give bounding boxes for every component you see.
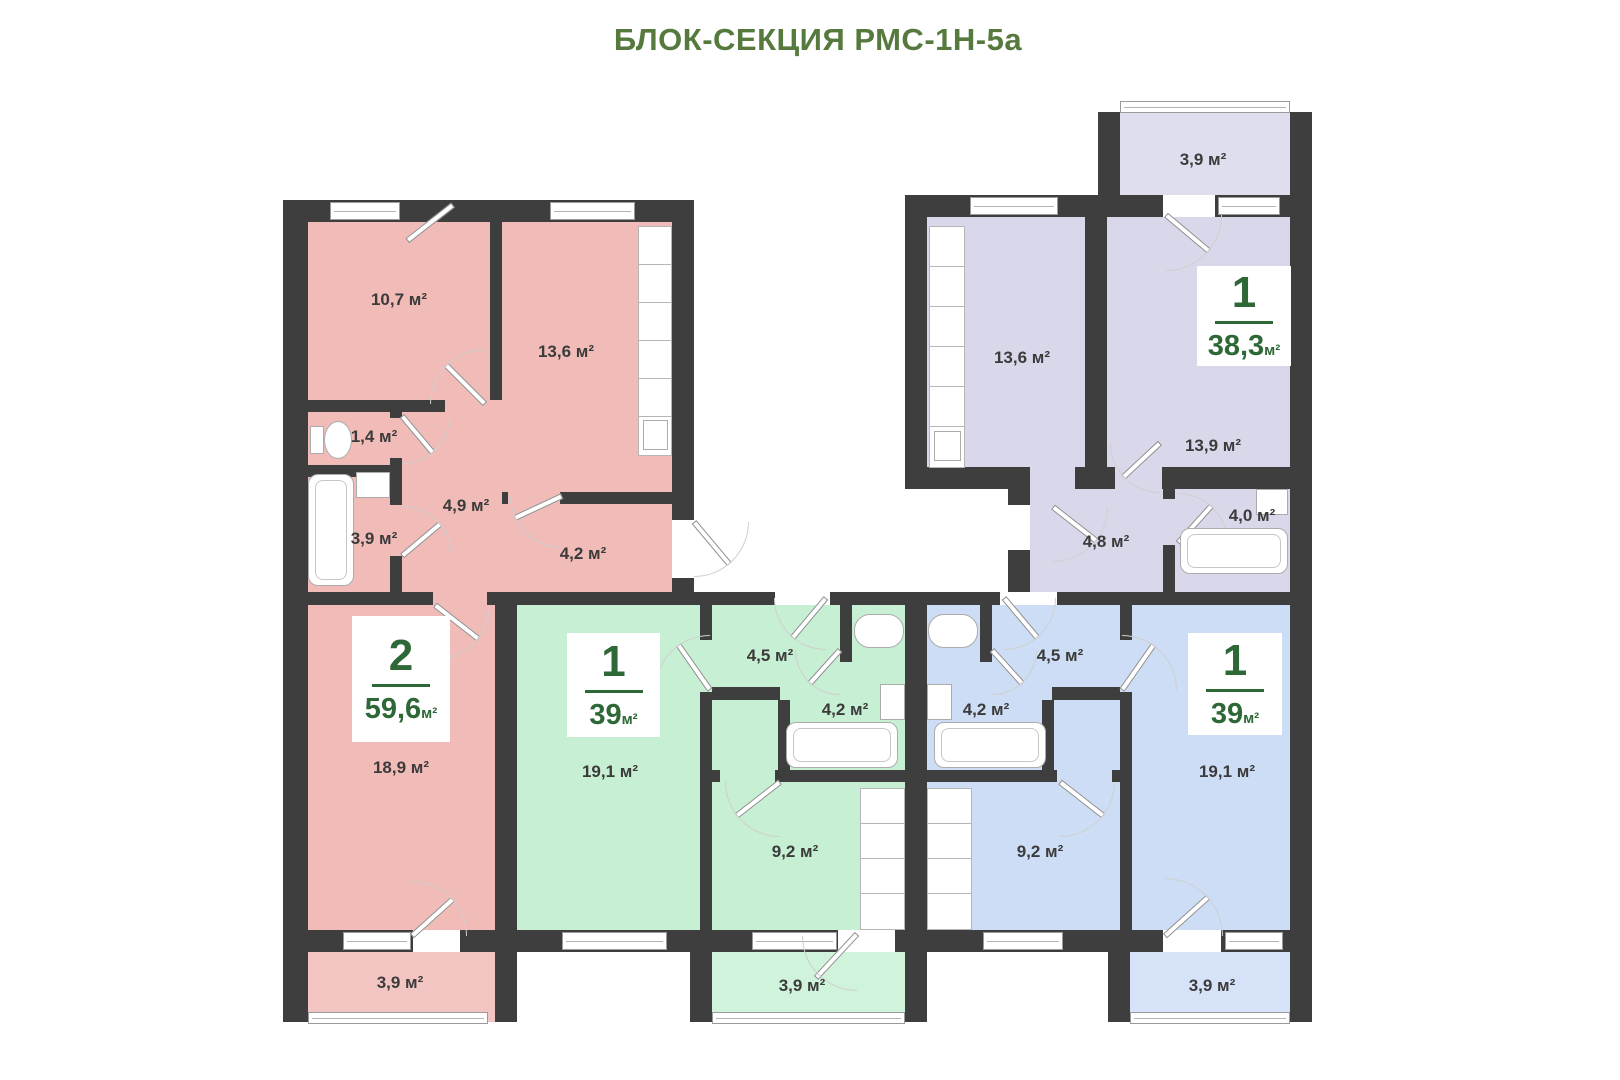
wall <box>712 770 720 782</box>
apartment-rooms-count: 1 <box>1223 639 1247 683</box>
door-opening <box>1163 195 1215 217</box>
door-opening <box>672 520 694 578</box>
wall <box>1120 605 1132 640</box>
balcony-rail <box>1120 101 1290 113</box>
wall <box>1290 112 1312 1022</box>
wall <box>927 770 1057 782</box>
room-label-pink-room1: 10,7 м² <box>371 290 427 310</box>
apartment-total-area-value: 39 <box>1211 698 1243 730</box>
vanity-unit <box>854 614 904 648</box>
wall <box>560 492 672 504</box>
balcony-rail <box>1130 1012 1290 1024</box>
room-label-blue-balcony: 3,9 м² <box>1189 976 1236 996</box>
badge-divider <box>1206 689 1264 692</box>
floor-plan: 10,7 м²13,6 м²1,4 м²3,9 м²4,9 м²4,2 м²18… <box>0 0 1620 1080</box>
stove <box>934 431 961 461</box>
wall <box>502 492 508 504</box>
area-unit: м² <box>421 705 437 722</box>
wall <box>1008 550 1030 592</box>
kitchen-counter <box>860 788 905 825</box>
apartment-rooms-count: 2 <box>389 634 413 678</box>
sink <box>356 472 390 498</box>
wall <box>905 952 927 1022</box>
wall <box>308 400 445 412</box>
wall <box>1052 687 1120 700</box>
kitchen-counter <box>927 858 972 895</box>
room-label-green-bath: 4,2 м² <box>822 700 869 720</box>
window <box>970 197 1058 215</box>
toilet-bowl <box>324 421 352 459</box>
apartment-total-area: 59,6м² <box>365 695 438 724</box>
wall <box>905 195 927 489</box>
wall <box>1112 770 1120 782</box>
room-label-pink-hall: 4,9 м² <box>443 496 490 516</box>
kitchen-counter <box>929 386 965 428</box>
window <box>562 932 667 950</box>
wall <box>690 952 712 1022</box>
wall <box>1008 489 1030 505</box>
toilet-tank <box>310 426 324 454</box>
room-label-pink-living: 18,9 м² <box>373 758 429 778</box>
kitchen-counter <box>860 893 905 930</box>
sink <box>927 684 952 720</box>
window <box>330 202 400 220</box>
bathtub <box>1180 528 1288 574</box>
apartment-total-area: 39м² <box>589 701 637 730</box>
balcony-rail <box>308 1012 488 1024</box>
bathtub <box>934 722 1046 768</box>
wall <box>490 222 502 400</box>
apartment-total-area: 39м² <box>1211 700 1259 729</box>
room-label-pink-bath: 3,9 м² <box>351 529 398 549</box>
wall <box>390 556 402 592</box>
room-label-lavender-bath: 4,0 м² <box>1229 506 1276 526</box>
badge-divider <box>1215 321 1273 324</box>
kitchen-counter <box>638 302 672 342</box>
apartment-badge-blue: 139м² <box>1188 633 1282 735</box>
room-label-pink-kitchen: 13,6 м² <box>538 342 594 362</box>
wall <box>672 200 694 520</box>
badge-divider <box>372 684 430 687</box>
wall <box>712 687 780 700</box>
wall <box>390 458 402 505</box>
area-unit: м² <box>1243 710 1259 727</box>
badge-divider <box>585 690 643 693</box>
apartment-total-area: 38,3м² <box>1208 332 1281 361</box>
wall <box>1108 952 1130 1022</box>
kitchen-counter <box>638 378 672 418</box>
wall <box>495 952 517 1022</box>
stove <box>643 420 668 450</box>
area-unit: м² <box>1264 342 1280 359</box>
kitchen-counter <box>929 226 965 268</box>
wall <box>1163 489 1175 499</box>
sink <box>880 684 905 720</box>
wall <box>1075 467 1115 489</box>
wall <box>775 770 905 782</box>
apartment-total-area-value: 59,6 <box>365 693 421 725</box>
window <box>1218 197 1280 215</box>
window <box>1225 932 1283 950</box>
kitchen-counter <box>638 226 672 266</box>
vanity-unit <box>928 614 978 648</box>
room-label-blue-living: 19,1 м² <box>1199 762 1255 782</box>
room-label-pink-wc: 1,4 м² <box>351 427 398 447</box>
wall <box>308 592 433 605</box>
bathtub <box>786 722 898 768</box>
wall <box>283 200 308 1022</box>
wall <box>840 605 852 662</box>
kitchen-counter <box>927 893 972 930</box>
wall <box>1098 112 1120 195</box>
room-label-green-kitchen: 9,2 м² <box>772 842 819 862</box>
door-opening <box>1008 505 1030 550</box>
balcony-rail <box>712 1012 905 1024</box>
room-label-lavender-balcony: 3,9 м² <box>1180 150 1227 170</box>
area-unit: м² <box>622 711 638 728</box>
bathtub <box>308 474 354 586</box>
apartment-total-area-value: 39 <box>589 699 621 731</box>
window <box>983 932 1063 950</box>
kitchen-counter <box>929 306 965 348</box>
kitchen-counter <box>929 346 965 388</box>
kitchen-counter <box>860 823 905 860</box>
wall <box>1120 692 1132 930</box>
room-label-lavender-kitchen: 13,6 м² <box>994 348 1050 368</box>
kitchen-counter <box>638 264 672 304</box>
wall <box>1057 592 1290 605</box>
room-label-pink-corridor: 4,2 м² <box>560 544 607 564</box>
apartment-badge-lavender: 138,3м² <box>1197 266 1291 366</box>
kitchen-counter <box>927 788 972 825</box>
kitchen-counter <box>929 266 965 308</box>
wall <box>700 605 712 640</box>
apartment-total-area-value: 38,3 <box>1208 330 1264 362</box>
apartment-badge-green: 139м² <box>567 633 660 737</box>
room-label-lavender-hall: 4,8 м² <box>1083 532 1130 552</box>
room-label-blue-bath: 4,2 м² <box>963 700 1010 720</box>
kitchen-counter <box>927 823 972 860</box>
apartment-badge-pink: 259,6м² <box>352 616 450 742</box>
room-label-blue-hall: 4,5 м² <box>1037 646 1084 666</box>
door-leaf <box>692 520 732 566</box>
room-label-blue-kitchen: 9,2 м² <box>1017 842 1064 862</box>
door-opening <box>413 930 460 952</box>
wall <box>1163 545 1175 592</box>
room-label-green-hall: 4,5 м² <box>747 646 794 666</box>
room-label-pink-balcony: 3,9 м² <box>377 973 424 993</box>
room-label-green-balcony: 3,9 м² <box>779 976 826 996</box>
window <box>550 202 635 220</box>
room-label-green-living: 19,1 м² <box>582 762 638 782</box>
kitchen-counter <box>860 858 905 895</box>
apartment-rooms-count: 1 <box>1232 271 1256 315</box>
window <box>752 932 837 950</box>
kitchen-counter <box>638 340 672 380</box>
apartment-rooms-count: 1 <box>601 640 625 684</box>
wall <box>700 692 712 930</box>
room-label-lavender-room: 13,9 м² <box>1185 436 1241 456</box>
wall <box>905 592 927 952</box>
wall <box>487 592 775 605</box>
wall <box>1085 217 1107 467</box>
window <box>343 932 411 950</box>
floor-plan-page: БЛОК-СЕКЦИЯ РМС-1Н-5а 10,7 м²13,6 м²1,4 … <box>0 0 1620 1080</box>
wall <box>1162 467 1290 489</box>
wall <box>495 592 517 952</box>
wall <box>905 467 1030 489</box>
